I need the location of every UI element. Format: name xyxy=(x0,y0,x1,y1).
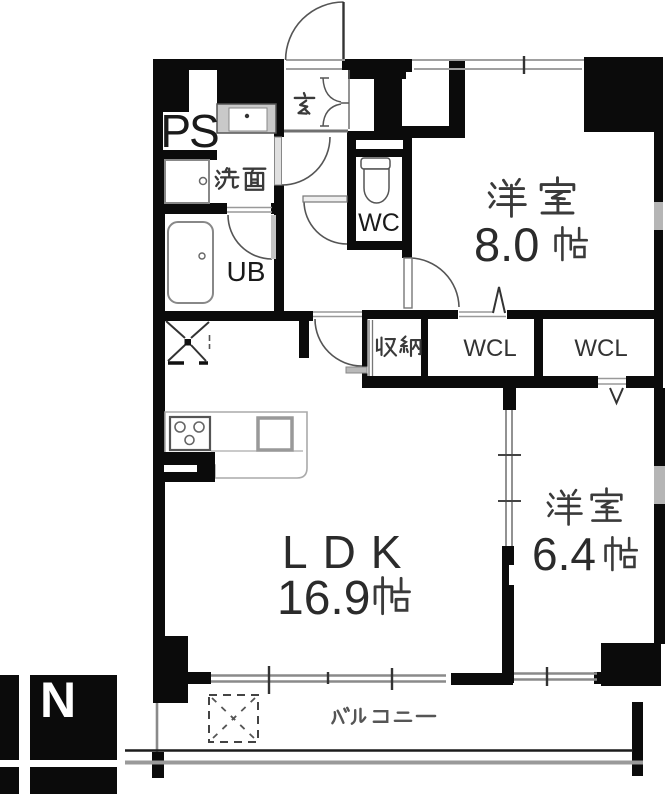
svg-text:16.9: 16.9 xyxy=(277,572,370,625)
svg-text:LDK: LDK xyxy=(282,526,416,578)
svg-text:8.0: 8.0 xyxy=(474,218,539,271)
svg-text:UB: UB xyxy=(227,256,266,287)
svg-text:6.4: 6.4 xyxy=(532,528,596,580)
svg-text:WCL: WCL xyxy=(574,335,627,362)
svg-text:WCL: WCL xyxy=(463,335,516,362)
svg-text:PS: PS xyxy=(160,105,218,157)
svg-text:N: N xyxy=(40,672,76,728)
svg-text:WC: WC xyxy=(358,209,400,237)
